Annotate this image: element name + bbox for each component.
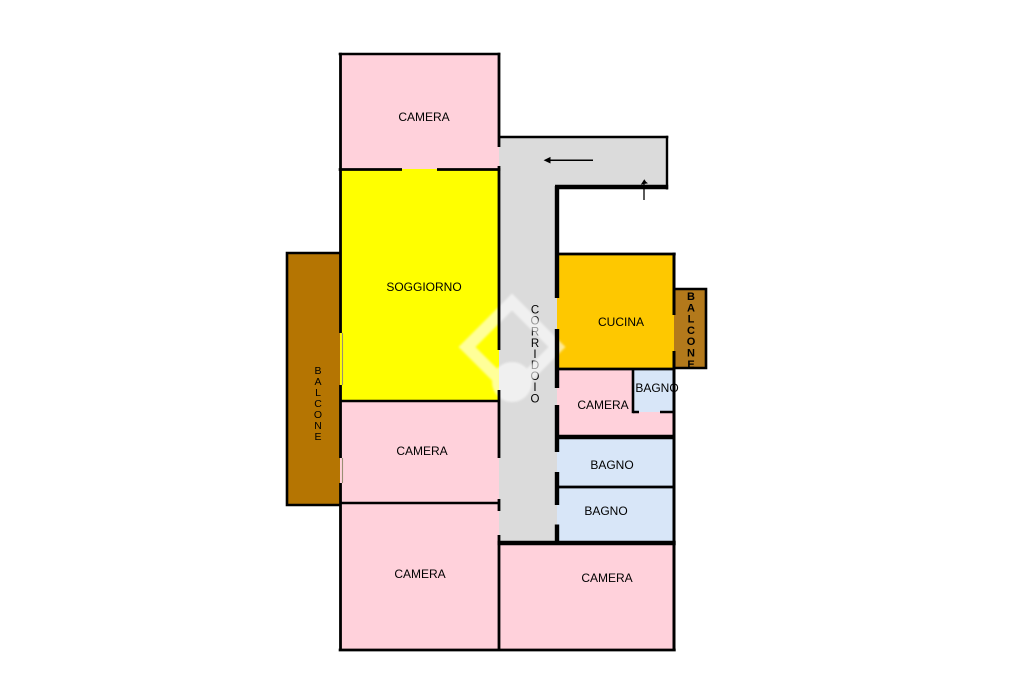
svg-text:CAMERA: CAMERA [394,567,445,581]
svg-text:E: E [314,431,321,443]
svg-text:N: N [687,348,695,360]
svg-text:O: O [531,393,540,405]
svg-text:CAMERA: CAMERA [577,398,628,412]
svg-text:L: L [688,314,695,326]
svg-text:B: B [687,291,695,303]
svg-text:BAGNO: BAGNO [584,504,627,518]
svg-text:CAMERA: CAMERA [398,110,449,124]
svg-text:O: O [687,336,696,348]
svg-text:CAMERA: CAMERA [581,571,632,585]
svg-text:SOGGIORNO: SOGGIORNO [386,280,461,294]
svg-text:CUCINA: CUCINA [598,315,644,329]
svg-text:E: E [687,359,694,371]
svg-text:BAGNO: BAGNO [590,458,633,472]
svg-text:BAGNO: BAGNO [635,381,678,395]
svg-text:CAMERA: CAMERA [396,444,447,458]
svg-text:A: A [687,302,695,314]
svg-text:C: C [687,325,695,337]
